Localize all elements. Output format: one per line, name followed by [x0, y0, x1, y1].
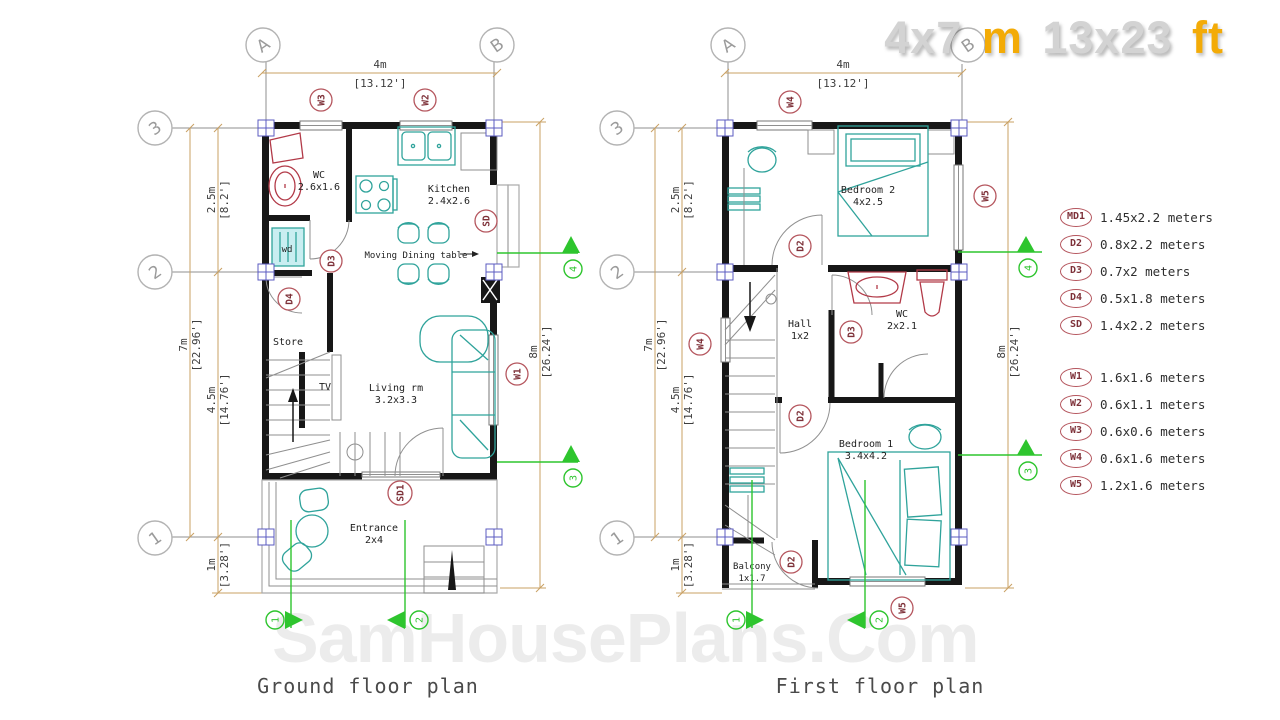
title-size-meters: 4x7 [884, 12, 962, 63]
schedule-legend: MD11.45x2.2 meters D20.8x2.2 meters D30.… [1060, 204, 1213, 499]
dim-total-m: 7m [642, 338, 655, 352]
door-tag-sd: SD [1060, 316, 1092, 335]
section-arrow-icon [746, 611, 764, 629]
hall-size: 1x2 [791, 331, 809, 342]
bedroom1-size: 3.4x4.2 [845, 451, 887, 462]
dining-note: Moving Dining table [365, 251, 468, 261]
plan-title: 4x7 m 13x23 ft [884, 12, 1230, 64]
legend-row: W20.6x1.1 meters [1060, 391, 1213, 418]
door-size: 0.5x1.8 meters [1100, 291, 1205, 306]
door-size: 0.7x2 meters [1100, 264, 1190, 279]
tag-d3: D3 [327, 255, 338, 267]
stove-icon [356, 176, 397, 213]
dim-seg-bottom-ft: [3.28'] [218, 542, 231, 588]
legend-row: D40.5x1.8 meters [1060, 285, 1213, 312]
dim-height-m: 8m [995, 345, 1008, 359]
section-2: 2 [415, 617, 426, 623]
dim-height-m: 8m [527, 345, 540, 359]
sliding-door-sd-icon [497, 185, 508, 267]
dim-seg-bottom-ft: [3.28'] [682, 542, 695, 588]
tag-w4: W4 [696, 338, 707, 350]
dim-width-ft: [13.12'] [354, 77, 407, 90]
bed1-icon [828, 452, 950, 580]
door-tag-d4: D4 [1060, 289, 1092, 308]
closet-door-icon [884, 354, 928, 398]
dim-total-ft: [22.96'] [655, 319, 668, 372]
dim-total-m: 7m [177, 338, 190, 352]
sink-icon [270, 133, 303, 163]
section-3: 3 [569, 475, 580, 481]
first-grid-lines [634, 62, 962, 537]
legend-row: SD1.4x2.2 meters [1060, 312, 1213, 339]
section-arrow-icon [1017, 236, 1035, 252]
section-4: 4 [1024, 265, 1035, 271]
tag-w3: W3 [317, 94, 328, 106]
dim-seg-bottom-m: 1m [205, 558, 218, 572]
bedroom1-chair-icon [909, 424, 941, 449]
ground-interior-walls [262, 122, 349, 428]
tv-label: TV [319, 382, 331, 393]
tag-d4: D4 [285, 293, 296, 305]
tag-d3: D3 [847, 326, 858, 338]
kitchen-size: 2.4x2.6 [428, 196, 470, 207]
tag-w5: W5 [898, 602, 909, 614]
section-1: 1 [271, 617, 282, 623]
section-1: 1 [732, 617, 743, 623]
legend-row: D30.7x2 meters [1060, 258, 1213, 285]
section-arrow-icon [847, 611, 865, 629]
door-size: 1.45x2.2 meters [1100, 210, 1213, 225]
shaft-column-icon [481, 277, 500, 303]
dim-seg-top-m: 2.5m [669, 186, 682, 213]
dim-width-m: 4m [836, 58, 850, 71]
tag-d2: D2 [796, 240, 807, 251]
tag-d2: D2 [796, 410, 807, 421]
window-tag-w1: W1 [1060, 368, 1092, 387]
living-label: Living rm [369, 383, 423, 394]
dim-seg-mid-ft: [14.76'] [682, 374, 695, 427]
tag-sd: SD [482, 215, 493, 227]
wc-label: WC [313, 170, 325, 181]
window-size: 0.6x0.6 meters [1100, 424, 1205, 439]
tag-sd1: SD1 [396, 484, 407, 501]
floor-plan-sheet: SamHousePlans.Com A B 3 2 [0, 0, 1280, 720]
window-tag-w5: W5 [1060, 476, 1092, 495]
kitchen-sink-icon [398, 127, 455, 165]
legend-row: W40.6x1.6 meters [1060, 445, 1213, 472]
dim-height-ft: [26.24'] [1008, 326, 1021, 379]
section-2: 2 [875, 617, 886, 623]
dim-seg-mid-ft: [14.76'] [218, 374, 231, 427]
dim-seg-mid-m: 4.5m [669, 386, 682, 413]
first-stairs-icon [725, 275, 776, 555]
section-3: 3 [1024, 468, 1035, 474]
dim-seg-top-ft: [8.2'] [218, 180, 231, 220]
wc-label: WC [896, 309, 908, 320]
legend-row: D20.8x2.2 meters [1060, 231, 1213, 258]
window-tag-w2: W2 [1060, 395, 1092, 414]
ground-floor-plan: A B 3 2 1 4m [13.12'] [138, 28, 582, 629]
door-size: 0.8x2.2 meters [1100, 237, 1205, 252]
legend-row: W30.6x0.6 meters [1060, 418, 1213, 445]
tag-w5: W5 [981, 190, 992, 202]
title-unit-feet: ft [1192, 12, 1224, 63]
window-size: 1.6x1.6 meters [1100, 370, 1205, 385]
shelves-icon [728, 168, 760, 265]
window-tag-w3: W3 [1060, 422, 1092, 441]
porch-table-icon [279, 487, 329, 574]
shelves-icon [730, 468, 764, 538]
sofa-icon [420, 316, 495, 458]
washer-label: wd [282, 245, 293, 255]
hall-label: Hall [788, 319, 812, 330]
tag-w1: W1 [513, 368, 524, 380]
section-arrow-icon [562, 236, 580, 253]
dim-total-ft: [22.96'] [190, 319, 203, 372]
bedroom2-label: Bedroom 2 [841, 185, 895, 196]
first-floor-caption: First floor plan [730, 674, 1030, 698]
dining-arrow-icon [472, 251, 479, 257]
tag-d2: D2 [787, 556, 798, 567]
door-tag-d3: D3 [1060, 262, 1092, 281]
legend-row: W51.2x1.6 meters [1060, 472, 1213, 499]
bed2-icon [808, 126, 954, 236]
section-arrow-icon [1017, 439, 1035, 455]
title-unit-meters: m [982, 12, 1023, 63]
ground-wc-fixtures [269, 133, 303, 206]
wc-size: 2x2.1 [887, 321, 917, 332]
legend-row: W11.6x1.6 meters [1060, 364, 1213, 391]
window-tag-w4: W4 [1060, 449, 1092, 468]
dim-seg-top-ft: [8.2'] [682, 180, 695, 220]
door-size: 1.4x2.2 meters [1100, 318, 1205, 333]
section-arrow-icon [387, 611, 405, 629]
window-size: 1.2x1.6 meters [1100, 478, 1205, 493]
living-size: 3.2x3.3 [375, 395, 417, 406]
ground-floor-caption: Ground floor plan [218, 674, 518, 698]
dim-width-ft: [13.12'] [817, 77, 870, 90]
tag-w2: W2 [421, 94, 432, 105]
window-size: 0.6x1.1 meters [1100, 397, 1205, 412]
store-label: Store [273, 337, 303, 348]
tag-w4: W4 [786, 96, 797, 108]
entrance-label: Entrance [350, 523, 398, 534]
wc-size: 2.6x1.6 [298, 182, 340, 193]
legend-row: MD11.45x2.2 meters [1060, 204, 1213, 231]
stairs-down-arrow-icon [744, 316, 756, 332]
bedroom1-label: Bedroom 1 [839, 439, 893, 450]
section-4: 4 [569, 266, 580, 272]
entrance-size: 2x4 [365, 535, 383, 546]
bedroom2-size: 4x2.5 [853, 197, 883, 208]
dim-seg-bottom-m: 1m [669, 558, 682, 572]
dim-seg-mid-m: 4.5m [205, 386, 218, 413]
door-tag-d2: D2 [1060, 235, 1092, 254]
section-arrow-icon [285, 611, 303, 629]
section-arrow-icon [562, 445, 580, 462]
dim-width-m: 4m [373, 58, 387, 71]
dim-height-ft: [26.24'] [540, 326, 553, 379]
dim-seg-top-m: 2.5m [205, 186, 218, 213]
ground-stairs-icon [266, 352, 400, 478]
window-size: 0.6x1.6 meters [1100, 451, 1205, 466]
first-floor-plan: A B 3 2 1 4m [13.12'] [600, 28, 1042, 629]
tv-console-icon [332, 355, 341, 420]
kitchen-label: Kitchen [428, 184, 470, 195]
door-md1-icon [395, 428, 443, 476]
door-tag-md1: MD1 [1060, 208, 1092, 227]
desk-chair-icon [748, 147, 776, 172]
title-size-feet: 13x23 [1042, 12, 1172, 63]
